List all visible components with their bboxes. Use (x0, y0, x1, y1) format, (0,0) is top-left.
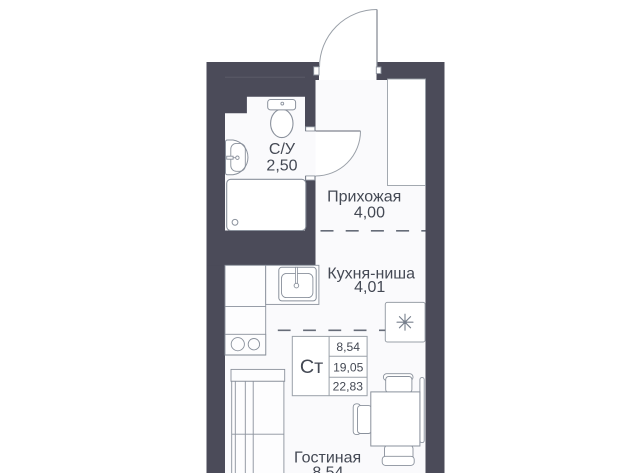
svg-text:Прихожая: Прихожая (327, 189, 401, 206)
svg-text:22,83: 22,83 (333, 380, 364, 394)
svg-text:8,54: 8,54 (312, 465, 343, 473)
svg-text:2,50: 2,50 (266, 157, 297, 174)
svg-text:8,54: 8,54 (336, 340, 360, 354)
svg-text:С/У: С/У (269, 141, 296, 158)
svg-text:4,00: 4,00 (354, 205, 385, 222)
svg-text:19,05: 19,05 (333, 360, 364, 374)
svg-text:Ст: Ст (300, 356, 323, 378)
svg-text:4,01: 4,01 (354, 279, 385, 296)
